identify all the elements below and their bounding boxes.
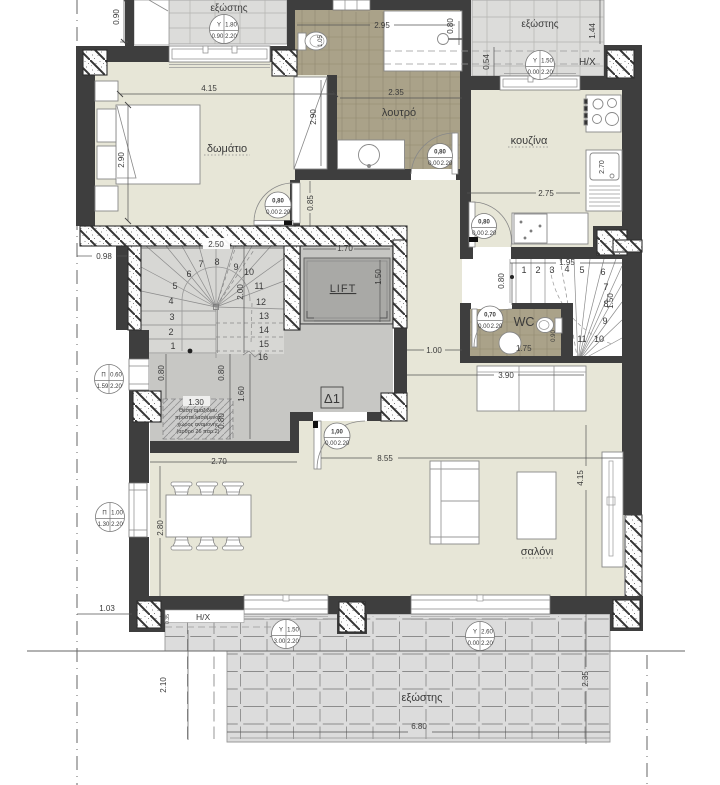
svg-text:(αρθρο 26 παρ.2): (αρθρο 26 παρ.2)	[176, 429, 219, 435]
svg-text:0.80: 0.80	[157, 365, 166, 381]
svg-text:λουτρό: λουτρό	[382, 107, 416, 119]
svg-text:4: 4	[168, 296, 173, 306]
svg-text:0.00: 0.00	[472, 231, 484, 237]
svg-text:0.00: 0.00	[478, 324, 490, 330]
svg-text:1.50: 1.50	[374, 269, 383, 285]
svg-text:0.80: 0.80	[446, 18, 455, 34]
svg-text:0.00: 0.00	[468, 641, 480, 647]
svg-text:2.95: 2.95	[374, 21, 390, 30]
svg-text:Π: Π	[101, 373, 105, 379]
svg-text:11: 11	[254, 281, 263, 291]
svg-text:0,80: 0,80	[434, 150, 446, 156]
svg-text:2.80: 2.80	[156, 520, 165, 536]
svg-text:χώρος αναμονής: χώρος αναμονής	[177, 421, 219, 428]
svg-text:H/X: H/X	[579, 57, 596, 68]
svg-text:κουζίνα: κουζίνα	[511, 135, 548, 147]
svg-text:12: 12	[256, 297, 266, 307]
svg-text:7: 7	[603, 282, 608, 292]
svg-text:9: 9	[602, 316, 607, 326]
svg-text:Y: Y	[473, 630, 477, 636]
svg-text:16: 16	[258, 352, 268, 362]
svg-text:2.20: 2.20	[338, 441, 350, 447]
svg-text:2.20: 2.20	[485, 231, 497, 237]
svg-text:2.90: 2.90	[117, 152, 126, 168]
svg-text:0,70: 0,70	[484, 313, 496, 319]
svg-text:0.00: 0.00	[266, 210, 278, 216]
svg-text:2.20: 2.20	[279, 210, 291, 216]
svg-text:4.15: 4.15	[576, 470, 585, 486]
svg-text:Y: Y	[533, 59, 537, 65]
svg-text:1.60: 1.60	[237, 386, 246, 402]
svg-text:0.00: 0.00	[528, 70, 540, 76]
svg-text:1.70: 1.70	[337, 244, 353, 253]
svg-text:2.20: 2.20	[225, 34, 237, 40]
svg-text:10: 10	[244, 267, 254, 277]
svg-text:Π: Π	[102, 511, 106, 517]
svg-text:2.20: 2.20	[541, 70, 553, 76]
svg-text:13: 13	[259, 311, 269, 321]
svg-text:Θέση αμαξιδίου: Θέση αμαξιδίου	[179, 407, 217, 414]
svg-text:2.70: 2.70	[599, 160, 606, 174]
svg-text:εξώστης: εξώστης	[402, 692, 443, 704]
svg-text:15: 15	[259, 339, 269, 349]
svg-text:1.95: 1.95	[559, 258, 575, 267]
svg-text:0.80: 0.80	[497, 273, 506, 289]
svg-text:6: 6	[600, 267, 605, 277]
svg-text:8: 8	[214, 257, 219, 267]
svg-text:1.59: 1.59	[97, 384, 109, 390]
svg-text:0.90: 0.90	[212, 34, 224, 40]
svg-text:0.00: 0.00	[325, 441, 337, 447]
svg-text:1: 1	[521, 265, 526, 275]
svg-text:2: 2	[535, 265, 540, 275]
svg-text:7: 7	[198, 259, 203, 269]
svg-text:1,00: 1,00	[331, 430, 343, 436]
svg-text:2.00: 2.00	[236, 284, 245, 300]
svg-text:LIFT: LIFT	[330, 283, 357, 295]
svg-text:1.50: 1.50	[541, 59, 553, 65]
svg-text:2.20: 2.20	[110, 384, 122, 390]
svg-text:1.30: 1.30	[188, 398, 204, 407]
svg-text:1.03: 1.03	[99, 604, 115, 613]
svg-text:6: 6	[186, 269, 191, 279]
svg-text:9: 9	[233, 262, 238, 272]
svg-text:2.35: 2.35	[388, 88, 404, 97]
svg-text:2.10: 2.10	[159, 677, 168, 693]
svg-text:14: 14	[259, 325, 269, 335]
svg-text:2.20: 2.20	[481, 641, 493, 647]
svg-text:0.90: 0.90	[112, 9, 121, 25]
svg-text:εξώστης: εξώστης	[210, 2, 247, 14]
svg-text:3: 3	[169, 312, 174, 322]
svg-text:Y: Y	[217, 23, 221, 29]
svg-text:1.50: 1.50	[606, 293, 615, 309]
svg-text:0.54: 0.54	[482, 54, 491, 70]
svg-text:2.75: 2.75	[538, 189, 554, 198]
svg-text:1.50: 1.50	[287, 628, 299, 634]
svg-text:δωμάτιο: δωμάτιο	[207, 143, 247, 155]
svg-text:Δ1: Δ1	[324, 391, 340, 406]
svg-text:0,80: 0,80	[272, 199, 284, 205]
svg-text:1.05: 1.05	[318, 35, 324, 47]
svg-text:1.30: 1.30	[98, 522, 110, 528]
svg-text:0.90: 0.90	[551, 330, 557, 342]
svg-text:4.15: 4.15	[201, 84, 217, 93]
svg-text:1.75: 1.75	[516, 344, 532, 353]
svg-text:1: 1	[170, 341, 175, 351]
svg-text:WC: WC	[514, 315, 535, 329]
svg-text:1.44: 1.44	[588, 23, 597, 39]
svg-text:2.20: 2.20	[491, 324, 503, 330]
svg-text:2.35: 2.35	[581, 671, 590, 687]
svg-text:2.60: 2.60	[481, 630, 493, 636]
svg-text:εξώστης: εξώστης	[521, 18, 558, 30]
svg-text:3.90: 3.90	[498, 371, 514, 380]
svg-text:8.55: 8.55	[377, 454, 393, 463]
svg-text:σαλόνι: σαλόνι	[521, 546, 554, 558]
svg-text:2.20: 2.20	[441, 161, 453, 167]
svg-text:1.80: 1.80	[225, 23, 237, 29]
svg-text:0.00: 0.00	[428, 161, 440, 167]
svg-text:0.60: 0.60	[110, 373, 122, 379]
svg-text:5: 5	[579, 265, 584, 275]
svg-text:2.90: 2.90	[309, 109, 318, 125]
svg-text:3.00: 3.00	[274, 639, 286, 645]
svg-text:0.80: 0.80	[217, 365, 226, 381]
svg-text:Y: Y	[279, 628, 283, 634]
svg-text:2.20: 2.20	[287, 639, 299, 645]
svg-text:0.35: 0.35	[165, 614, 171, 624]
svg-text:2.70: 2.70	[211, 457, 227, 466]
svg-text:2.50: 2.50	[208, 240, 224, 249]
svg-text:1.00: 1.00	[426, 346, 442, 355]
svg-text:5: 5	[172, 281, 177, 291]
svg-text:3: 3	[549, 265, 554, 275]
svg-text:1.00: 1.00	[111, 511, 123, 517]
svg-text:0,80: 0,80	[478, 220, 490, 226]
svg-text:2.20: 2.20	[111, 522, 123, 528]
svg-text:2: 2	[168, 327, 173, 337]
svg-text:10: 10	[594, 334, 604, 344]
svg-text:0.98: 0.98	[96, 252, 112, 261]
svg-text:11: 11	[577, 334, 586, 344]
svg-text:6.80: 6.80	[411, 722, 427, 731]
svg-text:0.85: 0.85	[306, 195, 315, 211]
svg-text:προσπελασόμενος: προσπελασόμενος	[175, 414, 221, 421]
svg-text:H/X: H/X	[196, 612, 211, 622]
